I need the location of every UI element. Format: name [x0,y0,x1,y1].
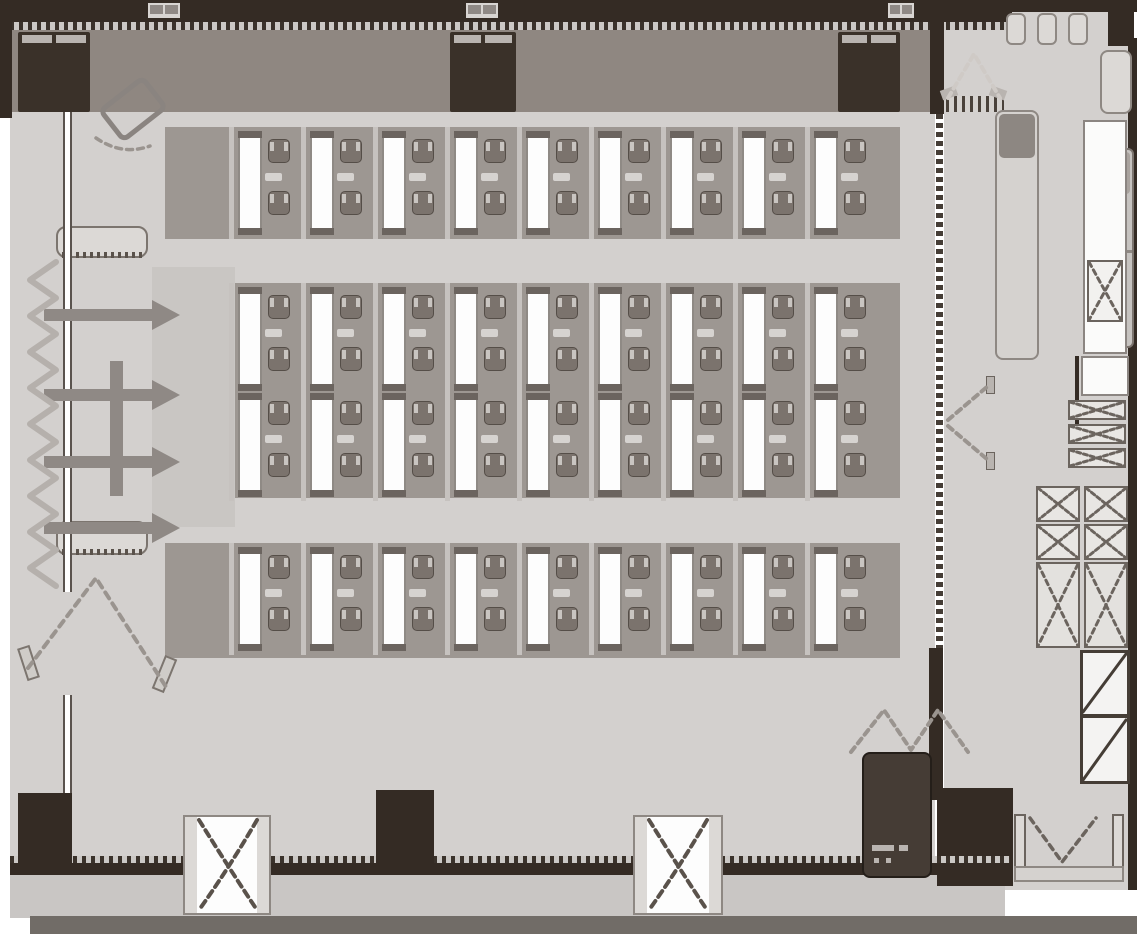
chair [556,607,578,631]
chair-gap-bar [265,589,282,597]
desk [238,393,262,497]
desk-end-cap [598,228,622,235]
desk-end-cap [526,644,550,651]
desk-bank-bottom-gap [229,543,234,655]
casement-post-right [1112,814,1124,872]
desk-end-cap [310,547,334,554]
desk [526,393,550,497]
desk [238,287,262,391]
stool-4 [1100,50,1132,114]
av-cabinet-handle-2 [899,845,908,851]
desk-end-cap [598,490,622,497]
chair [484,191,506,215]
desk-bank-top-gap [373,127,378,239]
desk-end-cap [670,287,694,294]
chair-gap-bar [265,173,282,181]
desk-bank-top-gap [733,127,738,239]
door-leaf-a2 [165,5,178,14]
desk-end-cap [310,287,334,294]
chair-gap-bar [625,435,642,443]
chair-gap-bar [841,173,858,181]
chair-gap-bar [625,173,642,181]
desk [598,547,622,651]
desk-end-cap [670,228,694,235]
chair [700,555,722,579]
chair [412,555,434,579]
desk [670,287,694,391]
chair [628,607,650,631]
desk [814,131,838,235]
desk [454,287,478,391]
chair [556,347,578,371]
desk [310,393,334,497]
chair [772,401,794,425]
slide-arrow-3-bar [44,456,152,468]
chair-gap-bar [409,589,426,597]
desk [382,547,406,651]
desk-end-cap [238,228,262,235]
chair [412,295,434,319]
desk-end-cap [598,644,622,651]
chair [844,453,866,477]
desk-end-cap [454,393,478,400]
desk-end-cap [670,384,694,391]
chair-gap-bar [697,435,714,443]
desk-end-cap [310,644,334,651]
chair [484,139,506,163]
chair [268,295,290,319]
slide-arrow-2-bar [44,389,152,401]
av-cabinet-dot-1 [874,858,879,863]
storage-shelf-divider [1080,714,1130,718]
chair [772,555,794,579]
chair [484,607,506,631]
desk-end-cap [670,644,694,651]
desk-end-cap [526,547,550,554]
chair [844,139,866,163]
chair [556,401,578,425]
desk-end-cap [382,490,406,497]
desk-bank-middle-gap [445,283,450,501]
cabinet-right-door-1 [842,35,867,43]
cabinet-left-door-1 [22,35,52,43]
chair [772,191,794,215]
stool-2 [1037,13,1057,45]
chair [844,191,866,215]
desk-end-cap [670,547,694,554]
stacked-chairs-1 [1068,400,1126,420]
desk-bank-bottom-gap [661,543,666,655]
chair-gap-bar [769,589,786,597]
chair [700,347,722,371]
side-window [1081,356,1129,396]
slide-arrow-2-cross [110,361,123,429]
desk-end-cap [598,547,622,554]
desk-bank-top-gap [229,127,234,239]
slide-arrow-3-head [152,447,180,477]
desk-end-cap [742,547,766,554]
floor-plan-canvas [0,0,1137,934]
trolley-2 [1084,562,1128,648]
chair [844,295,866,319]
chair [844,607,866,631]
chair-gap-bar [625,329,642,337]
desk-bank-top-gap [301,127,306,239]
desk-bank-bottom-gap [373,543,378,655]
desk-end-cap [814,384,838,391]
cabinet-mid-door-1 [454,35,481,43]
desk-end-cap [670,490,694,497]
bottom-wall [10,863,1010,875]
desk [814,287,838,391]
desk [454,393,478,497]
chair [772,607,794,631]
chair [628,191,650,215]
desk-end-cap [238,547,262,554]
chair-gap-bar [697,173,714,181]
stool-3 [1068,13,1088,45]
desk-bank-middle-gap [589,283,594,501]
folded-chair-rack-3 [1036,524,1080,560]
folded-chair-rack-1 [1036,486,1080,522]
desk-end-cap [454,228,478,235]
desk [454,131,478,235]
chair [628,347,650,371]
desk-bank-middle-gap [229,283,234,501]
desk-end-cap [742,644,766,651]
chair [628,139,650,163]
desk-end-cap [670,131,694,138]
folded-chair-rack-4 [1084,524,1128,560]
chair [340,139,362,163]
chair-gap-bar [265,329,282,337]
desk-end-cap [238,490,262,497]
console-upper-vents [62,252,142,258]
chair-gap-bar [553,435,570,443]
window-2-post-left [635,817,647,913]
chair [772,295,794,319]
desk-end-cap [598,393,622,400]
chair-gap-bar [481,435,498,443]
av-cabinet [862,752,932,878]
chair [628,401,650,425]
chair-gap-bar [697,329,714,337]
chair [340,295,362,319]
chair [700,453,722,477]
desk-bank-middle-gap [805,283,810,501]
desk-bank-top-gap [445,127,450,239]
desk [238,131,262,235]
casement-post-left [1014,814,1026,872]
desk-end-cap [742,393,766,400]
desk [310,547,334,651]
desk [598,393,622,497]
desk-end-cap [526,131,550,138]
slide-arrow-2-head [152,380,180,410]
desk-end-cap [526,287,550,294]
chair-gap-bar [409,173,426,181]
chair [700,401,722,425]
chair [628,295,650,319]
desk-end-cap [814,228,838,235]
desk-end-cap [742,228,766,235]
desk-end-cap [310,393,334,400]
chair [412,191,434,215]
chair [556,555,578,579]
folded-chair-rack-2 [1084,486,1128,522]
chair-gap-bar [337,173,354,181]
slide-arrow-1-head [152,300,180,330]
chair-gap-bar [409,329,426,337]
chair [412,139,434,163]
chair [268,347,290,371]
desk-end-cap [238,384,262,391]
chair [268,607,290,631]
desk-bank-bottom-gap [301,543,306,655]
wall-stub-corridor [1075,356,1079,432]
chair [844,401,866,425]
desk [814,393,838,497]
chair [844,347,866,371]
wall-cabinet-left [18,32,90,112]
trolley-1 [1036,562,1080,648]
chair [412,401,434,425]
chair-gap-bar [265,435,282,443]
desk-end-cap [310,228,334,235]
right-corner-block [1108,8,1134,46]
desk-end-cap [382,547,406,554]
chair-gap-bar [769,435,786,443]
desk-bank-middle-gap [733,283,738,501]
chair [628,555,650,579]
desk [310,131,334,235]
chair-gap-bar [409,435,426,443]
chair [844,555,866,579]
chair-gap-bar [625,589,642,597]
door-leaf-a1 [150,5,163,14]
desk-end-cap [742,287,766,294]
partition-track-dotted [936,114,943,648]
desk [454,547,478,651]
desk-bank-bottom-gap [733,543,738,655]
desk [742,131,766,235]
cabinet-right-door-2 [871,35,896,43]
door-leaf-c2 [902,5,912,14]
desk-end-cap [238,644,262,651]
desk [526,547,550,651]
crate-box [1087,260,1123,322]
chair-gap-bar [481,589,498,597]
desk [742,393,766,497]
window-1-post-right [257,817,269,913]
chair [340,555,362,579]
chair [484,295,506,319]
chair-gap-bar [553,173,570,181]
chair-gap-bar [553,329,570,337]
desk-bank-top-gap [805,127,810,239]
chair [700,139,722,163]
desk-end-cap [598,131,622,138]
desk-bank-top-gap [661,127,666,239]
desk-end-cap [238,131,262,138]
chair-gap-bar [769,329,786,337]
chair [772,347,794,371]
entrance-wall [930,22,944,114]
desk-end-cap [742,384,766,391]
door-leaf-b1 [468,5,481,14]
chair [340,453,362,477]
stacked-chairs-3 [1068,448,1126,468]
desk [382,393,406,497]
chair-gap-bar [841,435,858,443]
chair-gap-bar [481,173,498,181]
chair [340,191,362,215]
desk-end-cap [382,644,406,651]
desk-bank-middle-gap [373,283,378,501]
desk [382,287,406,391]
console-lower-vents [62,549,142,555]
slide-arrow-4-bar [44,522,152,534]
chair [484,401,506,425]
desk-end-cap [526,228,550,235]
desk-end-cap [382,393,406,400]
desk-end-cap [814,490,838,497]
desk-bank-bottom-gap [445,543,450,655]
chair [340,401,362,425]
desk [598,287,622,391]
desk-bank-middle-gap [301,283,306,501]
desk-end-cap [454,287,478,294]
desk-end-cap [454,644,478,651]
divider-door-jamb-1 [986,376,995,394]
desk-bank-middle-gap [517,283,522,501]
stool-1 [1006,13,1026,45]
desk-end-cap [238,287,262,294]
desk-end-cap [598,384,622,391]
desk-end-cap [598,287,622,294]
chair [700,607,722,631]
window-2-post-right [709,817,721,913]
chair [700,191,722,215]
wall-cabinet-right [838,32,900,112]
desk [670,547,694,651]
desk-end-cap [742,131,766,138]
top-wall-dotted-rail [10,22,1010,30]
casement-sill [1014,866,1124,882]
bottom-pillar-left [18,793,72,875]
cabinet-mid-door-2 [485,35,512,43]
desk [310,287,334,391]
slide-arrow-1-bar [44,309,152,321]
desk [670,131,694,235]
desk-end-cap [670,393,694,400]
desk [598,131,622,235]
chair-gap-bar [769,173,786,181]
chair [484,347,506,371]
desk [526,131,550,235]
chair-gap-bar [697,589,714,597]
chair [340,347,362,371]
desk-end-cap [454,384,478,391]
left-wall-window-lower [63,695,72,793]
desk-bank-top-gap [517,127,522,239]
desk-end-cap [382,287,406,294]
stacked-chairs-2 [1068,424,1126,444]
bench-cushion [999,114,1035,158]
desk-end-cap [310,490,334,497]
chair-gap-bar [481,329,498,337]
chair-gap-bar [553,589,570,597]
chair [772,139,794,163]
chair-gap-bar [337,589,354,597]
divider-door-jamb-2 [986,452,995,470]
desk [526,287,550,391]
chair [628,453,650,477]
slide-arrow-4-head [152,513,180,543]
chair [772,453,794,477]
chair [412,453,434,477]
desk-end-cap [310,131,334,138]
bottom-pillar-mid [376,790,434,875]
desk-end-cap [382,228,406,235]
desk-bank-middle-gap [661,283,666,501]
desk-end-cap [238,393,262,400]
chair [412,347,434,371]
desk-bank-bottom-gap [517,543,522,655]
chair [268,453,290,477]
chair [556,453,578,477]
desk [238,547,262,651]
av-cabinet-handle-1 [872,845,894,851]
chair-gap-bar [841,329,858,337]
desk-end-cap [454,131,478,138]
desk-end-cap [454,490,478,497]
chair [340,607,362,631]
desk-end-cap [526,490,550,497]
desk-bank-top-gap [589,127,594,239]
site-edge-band [30,916,1137,934]
chair [268,555,290,579]
desk-end-cap [310,384,334,391]
desk-end-cap [526,384,550,391]
desk-bank-bottom-gap [805,543,810,655]
av-cabinet-dot-2 [886,858,891,863]
chair [556,191,578,215]
slide-arrow-3-cross [110,428,123,496]
chair [268,139,290,163]
desk-end-cap [814,131,838,138]
chair [556,295,578,319]
desk-end-cap [454,547,478,554]
desk [742,547,766,651]
desk-end-cap [526,393,550,400]
chair-gap-bar [337,329,354,337]
desk-end-cap [382,131,406,138]
desk-end-cap [814,547,838,554]
entrance-mat [946,96,1004,112]
exterior-walkway [10,875,1005,918]
chair-gap-bar [337,435,354,443]
desk [670,393,694,497]
desk-end-cap [814,287,838,294]
wall-cabinet-mid [450,32,516,112]
chair [268,191,290,215]
desk-end-cap [742,490,766,497]
window-1-post-left [185,817,197,913]
desk [742,287,766,391]
chair-gap-bar [841,589,858,597]
chair [700,295,722,319]
